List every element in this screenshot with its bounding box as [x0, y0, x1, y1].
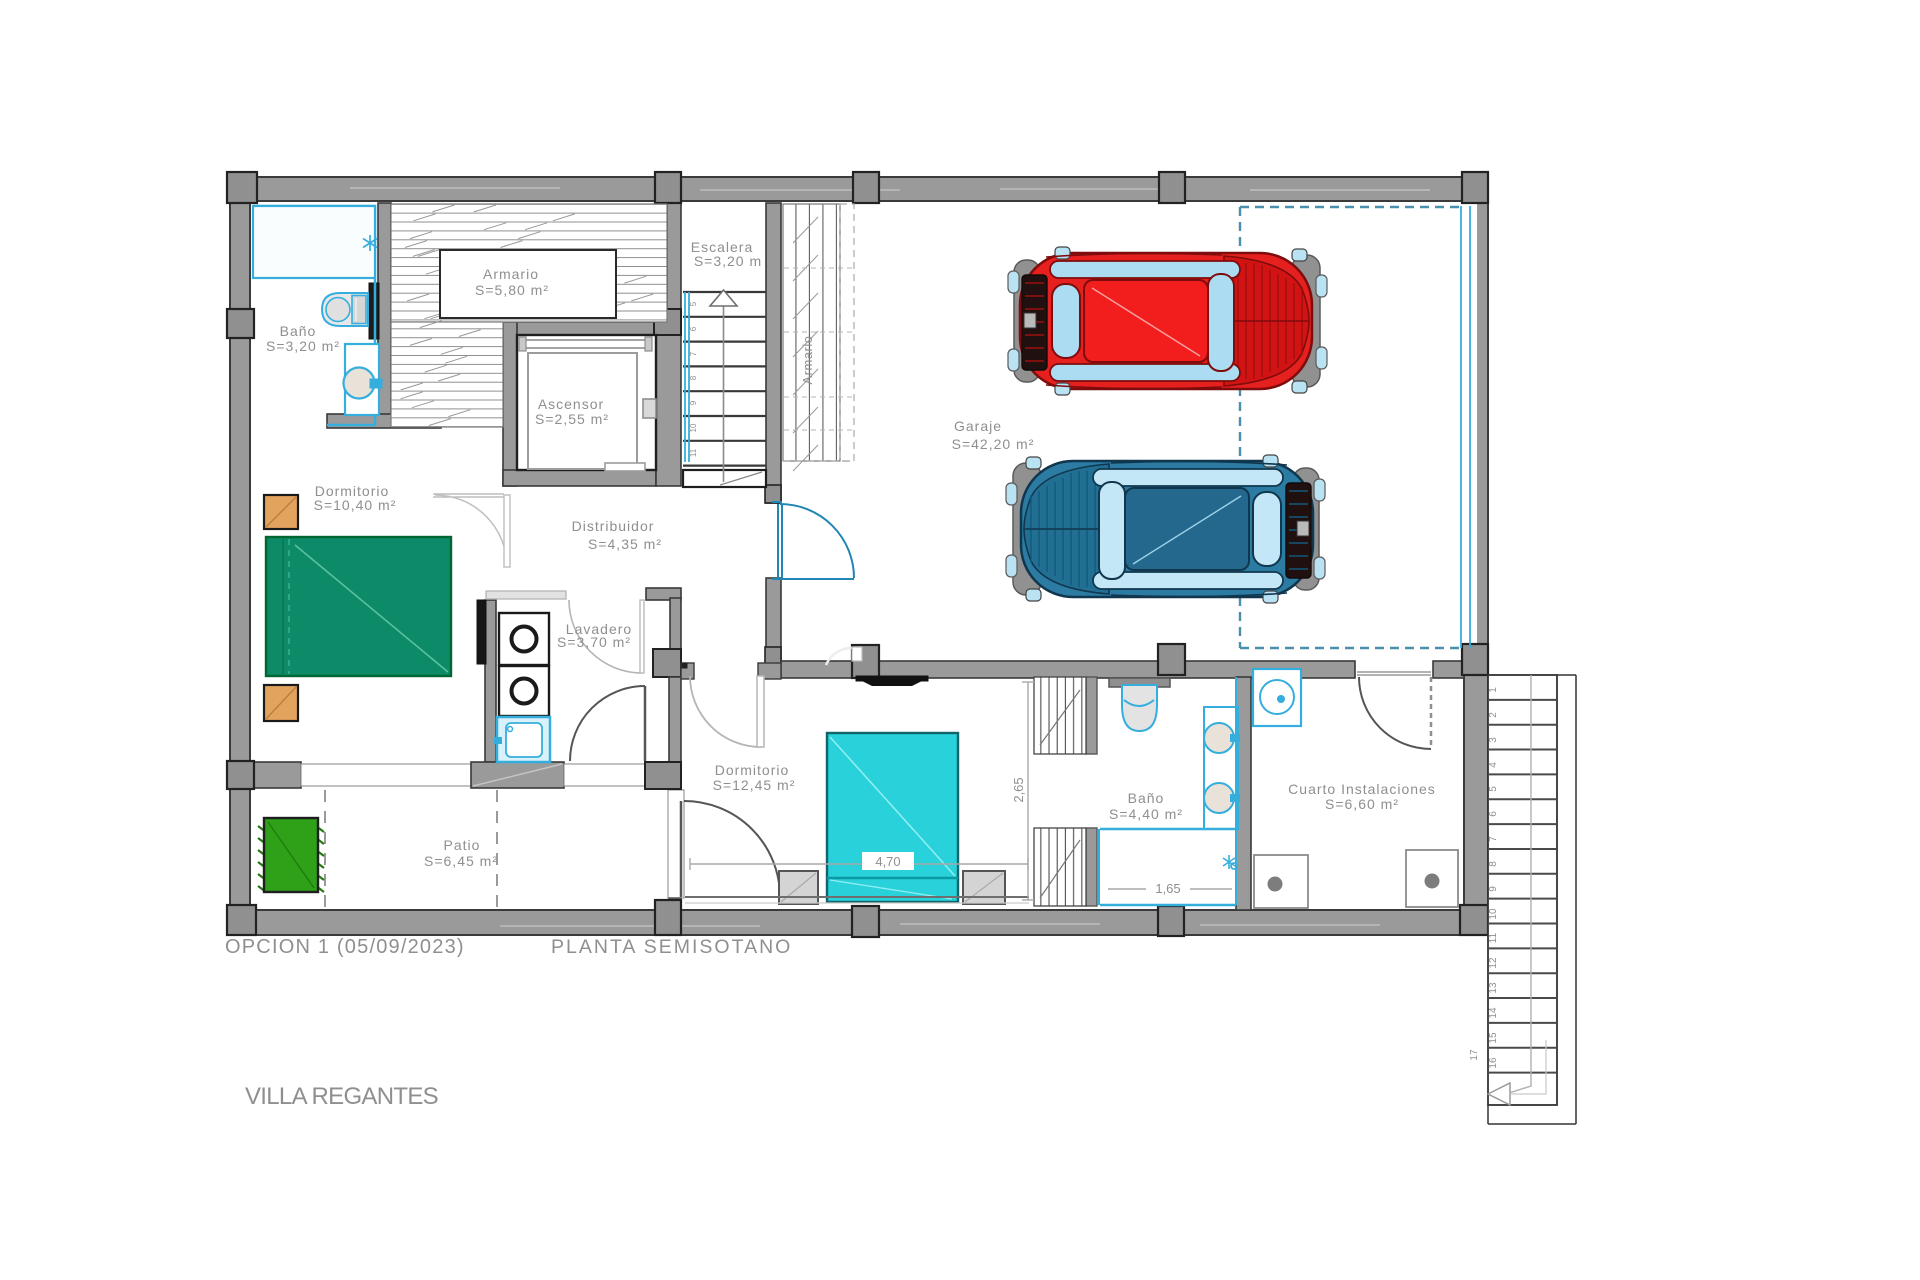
svg-text:8: 8: [689, 375, 698, 380]
svg-text:11: 11: [689, 448, 698, 457]
svg-text:Patio: Patio: [444, 837, 481, 853]
svg-text:1,65: 1,65: [1155, 881, 1180, 896]
svg-text:10: 10: [689, 423, 698, 432]
svg-text:Baño: Baño: [1128, 790, 1165, 806]
svg-text:13: 13: [1488, 982, 1499, 994]
svg-text:S=3,70 m²: S=3,70 m²: [557, 634, 631, 650]
svg-text:Baño: Baño: [280, 323, 317, 339]
svg-text:Distribuidor: Distribuidor: [572, 518, 655, 534]
svg-text:9: 9: [689, 400, 698, 405]
svg-text:2: 2: [1488, 712, 1499, 718]
svg-text:S=6,45 m²: S=6,45 m²: [424, 853, 498, 869]
svg-text:Armario: Armario: [483, 266, 539, 282]
svg-text:6: 6: [689, 326, 698, 331]
svg-text:S=4,40 m²: S=4,40 m²: [1109, 806, 1183, 822]
svg-text:S=10,40 m²: S=10,40 m²: [314, 497, 397, 513]
svg-text:8: 8: [1488, 861, 1499, 867]
svg-text:3: 3: [1488, 737, 1499, 743]
svg-text:14: 14: [1488, 1007, 1499, 1019]
svg-text:5: 5: [1488, 786, 1499, 792]
svg-text:Ascensor: Ascensor: [538, 396, 604, 412]
svg-text:S=12,45 m²: S=12,45 m²: [713, 777, 796, 793]
svg-text:2,65: 2,65: [1011, 777, 1026, 802]
svg-text:S=6,60 m²: S=6,60 m²: [1325, 796, 1399, 812]
svg-text:10: 10: [1488, 908, 1499, 920]
svg-text:7: 7: [1488, 836, 1499, 842]
svg-text:1: 1: [1488, 687, 1499, 693]
svg-text:11: 11: [1488, 932, 1499, 943]
svg-text:4,70: 4,70: [875, 854, 900, 869]
svg-text:Garaje: Garaje: [954, 418, 1002, 434]
svg-text:15: 15: [1488, 1032, 1499, 1044]
svg-text:Armario: Armario: [800, 335, 815, 384]
svg-text:S=4,35 m²: S=4,35 m²: [588, 536, 662, 552]
svg-text:9: 9: [1488, 886, 1499, 892]
svg-text:7: 7: [689, 351, 698, 356]
svg-text:S=2,55 m²: S=2,55 m²: [535, 411, 609, 427]
svg-text:S=42,20 m²: S=42,20 m²: [952, 436, 1035, 452]
svg-text:Dormitorio: Dormitorio: [715, 762, 790, 778]
svg-text:17: 17: [1469, 1049, 1480, 1061]
svg-text:16: 16: [1488, 1057, 1499, 1069]
svg-text:6: 6: [1488, 811, 1499, 817]
svg-text:4: 4: [1488, 762, 1499, 768]
svg-text:12: 12: [1488, 957, 1499, 969]
svg-text:5: 5: [689, 301, 698, 306]
svg-text:OPCION 1 (05/09/2023): OPCION 1 (05/09/2023): [225, 936, 465, 958]
svg-text:PLANTA SEMISOTANO: PLANTA SEMISOTANO: [551, 936, 792, 958]
svg-text:S=3,20 m: S=3,20 m: [694, 253, 762, 269]
svg-text:Cuarto Instalaciones: Cuarto Instalaciones: [1288, 781, 1436, 797]
svg-text:S=5,80 m²: S=5,80 m²: [475, 282, 549, 298]
svg-text:S=3,20 m²: S=3,20 m²: [266, 338, 340, 354]
svg-text:VILLA REGANTES: VILLA REGANTES: [245, 1083, 438, 1110]
